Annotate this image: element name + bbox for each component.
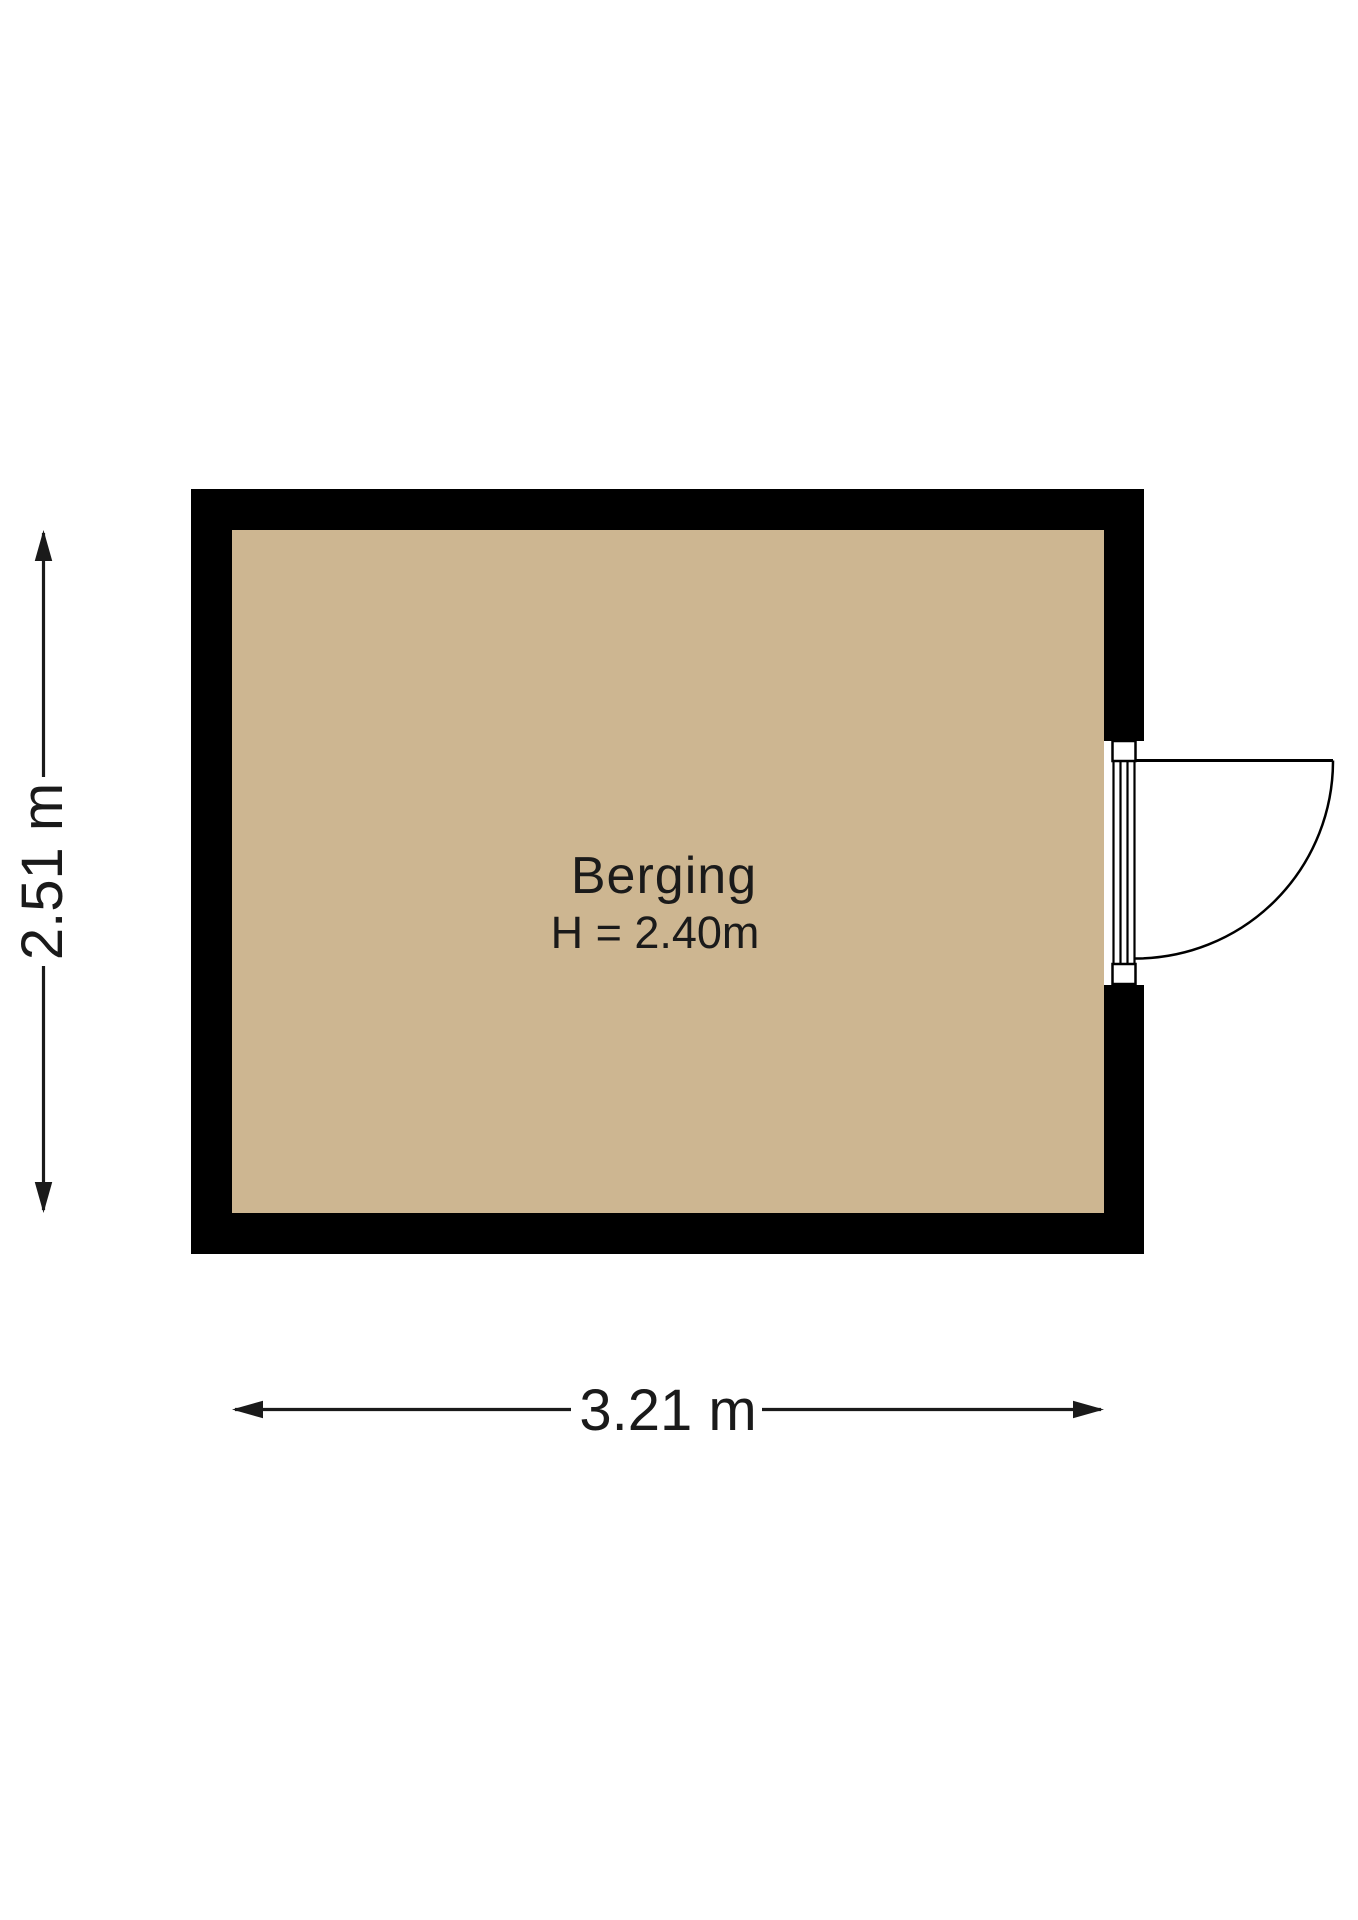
door-opening: [1104, 741, 1145, 985]
door-jamb-bottom: [1113, 964, 1136, 984]
floorplan-canvas: Berging H = 2.40m 2.51 m 3.21 m: [0, 0, 1358, 1920]
door-swing-arc: [1136, 761, 1334, 959]
room-ceiling-height-label: H = 2.40m: [551, 907, 760, 958]
dimension-horizontal-label: 3.21 m: [579, 1378, 756, 1443]
arrow-left-icon: [232, 1401, 263, 1419]
dimension-vertical: 2.51 m: [10, 530, 75, 1213]
door: [1104, 741, 1333, 985]
arrow-down-icon: [35, 1182, 53, 1213]
arrow-right-icon: [1073, 1401, 1104, 1419]
arrow-up-icon: [35, 530, 53, 561]
room-name-label: Berging: [571, 847, 757, 905]
dimension-horizontal: 3.21 m: [232, 1378, 1104, 1443]
door-jamb-top: [1113, 741, 1136, 761]
dimension-vertical-label: 2.51 m: [10, 783, 75, 960]
